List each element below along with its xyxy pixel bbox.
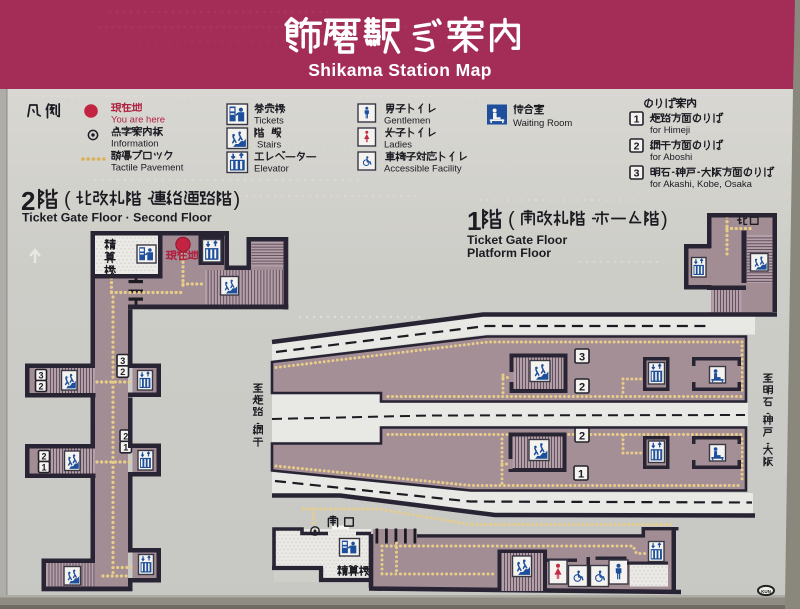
svg-text:2: 2 [634, 141, 640, 153]
svg-text:for Akashi, Kobe, Osaka: for Akashi, Kobe, Osaka [650, 179, 753, 190]
svg-text:): ) [661, 209, 668, 231]
svg-text:(: ( [64, 189, 71, 211]
svg-text:Ticket Gate Floor: Ticket Gate Floor [467, 233, 567, 247]
svg-text:2: 2 [41, 452, 46, 462]
svg-text:Ladies: Ladies [384, 140, 412, 151]
svg-text:1: 1 [41, 463, 46, 473]
svg-text:Elevator: Elevator [254, 164, 289, 175]
svg-text:2: 2 [123, 431, 128, 441]
svg-text:for Himeji: for Himeji [650, 125, 690, 136]
svg-text:3: 3 [120, 356, 125, 366]
svg-text:2: 2 [579, 381, 585, 393]
svg-text:3: 3 [579, 351, 585, 363]
svg-text:Information: Information [111, 139, 159, 150]
svg-text:1: 1 [578, 468, 584, 480]
svg-text:1: 1 [634, 114, 640, 126]
svg-text:Tactile Pavement: Tactile Pavement [111, 163, 184, 174]
svg-text:2: 2 [120, 367, 125, 377]
svg-text:Ticket Gate Floor · Second Flo: Ticket Gate Floor · Second Floor [22, 211, 212, 225]
svg-text:Tickets: Tickets [254, 116, 284, 127]
svg-text:Shikama Station Map: Shikama Station Map [308, 60, 492, 80]
svg-text:3: 3 [634, 168, 640, 180]
svg-text:Gentlemen: Gentlemen [384, 116, 430, 127]
svg-text:1: 1 [123, 443, 128, 453]
svg-text:(: ( [508, 209, 515, 231]
svg-text:3: 3 [38, 371, 43, 381]
svg-text:Platform Floor: Platform Floor [467, 246, 551, 260]
svg-text:1: 1 [467, 206, 481, 236]
svg-text:): ) [234, 189, 241, 211]
svg-text:Stairs: Stairs [257, 140, 282, 151]
svg-text:2: 2 [38, 382, 43, 392]
svg-text:for Aboshi: for Aboshi [650, 152, 692, 163]
svg-text:Waiting Room: Waiting Room [513, 118, 572, 129]
svg-text:2: 2 [579, 430, 585, 442]
svg-text:You are here: You are here [111, 115, 165, 126]
svg-text:Accessible Facility: Accessible Facility [384, 164, 462, 175]
svg-text:KUN: KUN [761, 589, 771, 594]
